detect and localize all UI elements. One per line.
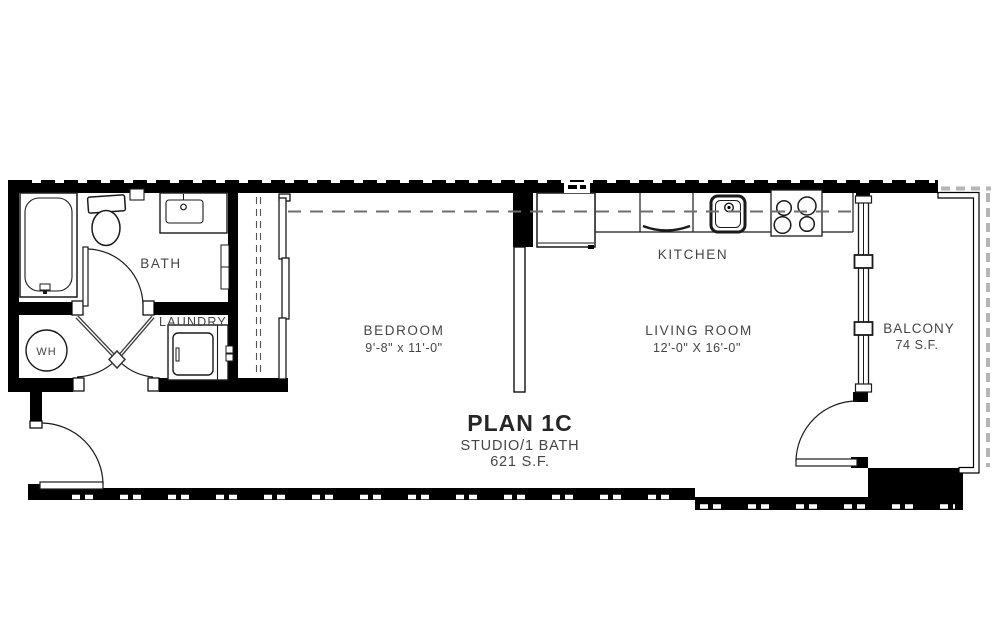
- wall-under-balcony: [868, 468, 963, 508]
- laundry-label: LAUNDRY: [159, 315, 227, 329]
- bath-wall-niche: [221, 245, 229, 289]
- bath-laundry-wall: [154, 302, 238, 315]
- balcony-area: 74 S.F.: [895, 338, 938, 352]
- range-cooktop: [771, 190, 822, 236]
- floor-plan-page: BATH LAUNDRY WH BEDROOM 9'-8" x 11'-0" K…: [0, 0, 998, 626]
- bedroom-dims: 9'-8" x 11'-0": [365, 341, 442, 355]
- medicine-cabinet: [130, 189, 144, 200]
- wall-below-tub: [8, 302, 72, 315]
- living-room-dims: 12'-0" X 16'-0": [653, 341, 741, 355]
- balcony-label: BALCONY: [883, 321, 955, 336]
- water-heater-label: WH: [36, 346, 56, 358]
- hall-bottom-wall-left: [8, 378, 73, 392]
- plan-area: 621 S.F.: [490, 454, 550, 470]
- hall-double-doors: [77, 317, 153, 377]
- floor-plan-drawing: BATH LAUNDRY WH BEDROOM 9'-8" x 11'-0" K…: [0, 0, 998, 626]
- kitchen-label: KITCHEN: [658, 247, 728, 262]
- vanity-sink: [160, 193, 227, 233]
- refrigerator: [537, 193, 595, 249]
- washer: [168, 325, 233, 380]
- left-wall: [8, 180, 19, 392]
- bedroom-partition-wall: [514, 247, 525, 392]
- kitchen-sink: [711, 196, 745, 232]
- plan-subtitle: STUDIO/1 BATH: [461, 438, 580, 454]
- bath-door: [83, 247, 143, 306]
- toilet: [87, 195, 125, 246]
- plan-title: PLAN 1C: [467, 410, 572, 436]
- closet-sliding-doors: [257, 197, 290, 379]
- balcony-windows: [855, 196, 873, 392]
- entry-stub-wall: [30, 392, 42, 423]
- bath-block-right-wall: [228, 193, 238, 392]
- wall-vent-notch: [564, 182, 590, 193]
- bedroom-kitchen-stub-wall: [513, 180, 533, 247]
- bathtub: [20, 193, 77, 297]
- balcony-door: [796, 401, 857, 466]
- entry-door: [40, 423, 103, 489]
- bath-label: BATH: [140, 256, 181, 271]
- dishwasher: [643, 226, 690, 231]
- living-room-label: LIVING ROOM: [645, 323, 753, 338]
- bedroom-label: BEDROOM: [364, 323, 445, 338]
